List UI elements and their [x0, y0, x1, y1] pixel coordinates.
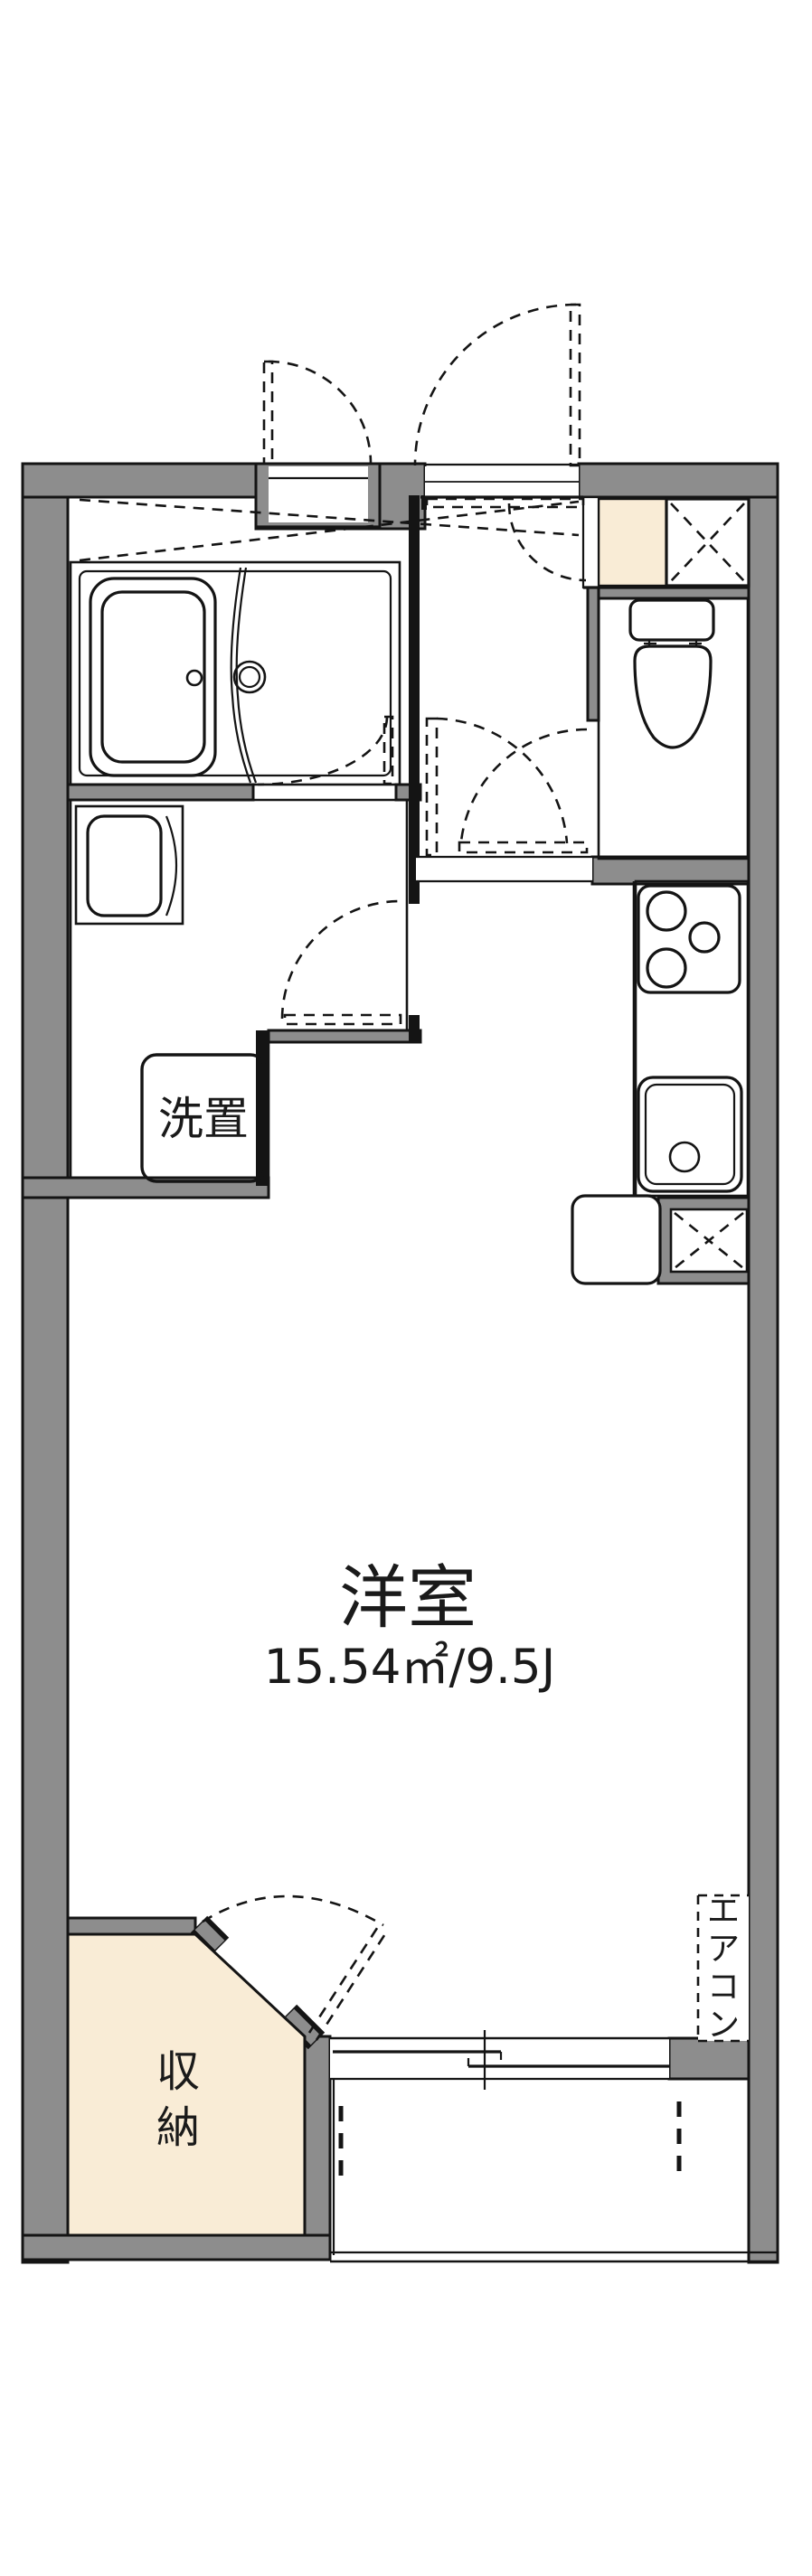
stove-burner: [647, 949, 685, 987]
washroom-door-panel: [285, 1015, 401, 1024]
service-door-recess: [269, 466, 368, 522]
entrance-door-swing: [415, 305, 576, 465]
wall-segment: [23, 464, 256, 497]
wall-segment: [579, 464, 778, 497]
washroom-door-swing: [282, 901, 401, 1019]
storage-door-panel: [309, 1923, 388, 2040]
stove-burner: [647, 892, 685, 930]
sliding-window: [330, 2038, 669, 2080]
wall-segment: [588, 588, 599, 720]
wall-segment: [23, 2235, 330, 2260]
main-room-area: 15.54㎡/9.5J: [264, 1640, 556, 1695]
wall-segment: [409, 1015, 420, 1042]
storage-door-swing: [203, 1896, 383, 1925]
toilet-bowl: [635, 646, 711, 747]
aircon-label-char: コ: [707, 1969, 740, 2006]
laundry-label: 洗置: [158, 1093, 249, 1145]
bathtub-inner: [102, 592, 204, 762]
stove-burner-small: [690, 923, 719, 952]
wall-segment: [592, 857, 749, 884]
storage-floors: [68, 499, 666, 2235]
aircon-label-char: ア: [707, 1931, 740, 1968]
storage-label-char: 収: [156, 2046, 200, 2097]
toilet: [630, 600, 713, 747]
kitchen-threshold: [416, 857, 592, 881]
hall-door-panel-open: [427, 719, 437, 855]
sink-drain: [670, 1142, 699, 1171]
wall-segment: [305, 2036, 330, 2260]
bathtub-outer: [90, 578, 215, 776]
aircon-label-char: ン: [707, 2007, 740, 2044]
wall-segment: [588, 588, 749, 598]
partition-walls: [256, 495, 427, 1186]
hall-door-swing-left: [437, 719, 567, 843]
vanity-basin: [88, 816, 161, 916]
service-door-panel: [264, 362, 272, 464]
aircon-label-char: エ: [707, 1893, 740, 1930]
doors: [80, 305, 587, 2040]
storage-label-char: 納: [156, 2102, 200, 2153]
wall-segment: [749, 464, 778, 2262]
wall-segment: [68, 785, 253, 800]
entrance-door-panel: [571, 305, 580, 465]
floorplan-page: エ ア コ ン 洋室 15.54㎡/9.5J 洗置 収 納: [0, 0, 812, 2576]
wall-segment: [68, 1918, 195, 1934]
vanity-counter: [76, 806, 183, 924]
wall-segment: [23, 464, 68, 2262]
toilet-floor: [599, 598, 748, 859]
floorplan-drawing: エ ア コ ン 洋室 15.54㎡/9.5J 洗置 収 納: [0, 0, 812, 2576]
service-door-swing: [269, 362, 371, 464]
washroom: [76, 806, 183, 924]
kitchen: [414, 857, 747, 1283]
hall-closet-door-swing: [509, 503, 586, 580]
wall-segment: [269, 1030, 420, 1042]
bathroom: [80, 568, 391, 783]
vanity-edge-curve: [166, 816, 176, 916]
refrigerator-space: [572, 1196, 660, 1283]
shoe-cabinet: [599, 499, 666, 586]
main-room-label: 洋室: [339, 1557, 477, 1638]
toilet-tank: [630, 600, 713, 640]
cabinet-gap: [583, 497, 599, 588]
wall-segment: [256, 1030, 269, 1186]
kitchen-sink-outer: [638, 1077, 741, 1191]
wall-segment: [409, 495, 420, 904]
bathroom-door-swing: [258, 717, 387, 785]
hall-door-panel-closed: [459, 842, 587, 852]
wall-segment: [669, 2038, 749, 2079]
hall-door-swing-right: [461, 729, 587, 841]
bathtub-faucet: [187, 671, 202, 685]
aircon-area: エ ア コ ン: [698, 1893, 749, 2044]
shower-screen-handle-inner: [240, 667, 260, 687]
